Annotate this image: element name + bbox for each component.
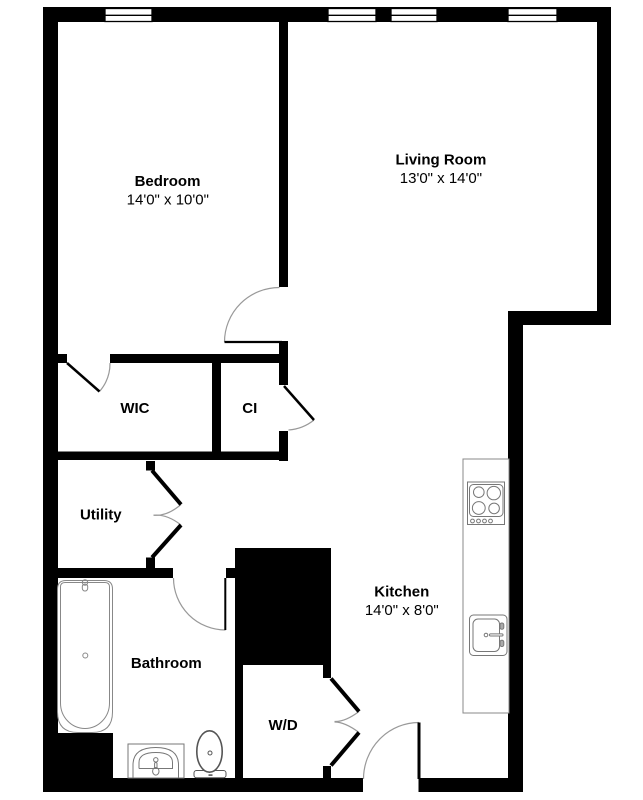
svg-text:13'0" x 14'0": 13'0" x 14'0" bbox=[400, 170, 482, 187]
svg-text:Kitchen: Kitchen bbox=[374, 584, 429, 601]
svg-text:Utility: Utility bbox=[80, 507, 122, 524]
svg-text:Bedroom: Bedroom bbox=[135, 173, 201, 190]
svg-text:WIC: WIC bbox=[120, 400, 149, 417]
svg-text:14'0" x 10'0": 14'0" x 10'0" bbox=[127, 192, 209, 209]
svg-text:W/D: W/D bbox=[269, 717, 298, 734]
svg-text:CI: CI bbox=[242, 400, 257, 417]
svg-text:Bathroom: Bathroom bbox=[131, 655, 202, 672]
svg-text:14'0" x 8'0": 14'0" x 8'0" bbox=[365, 602, 439, 619]
svg-text:Living Room: Living Room bbox=[395, 152, 486, 169]
